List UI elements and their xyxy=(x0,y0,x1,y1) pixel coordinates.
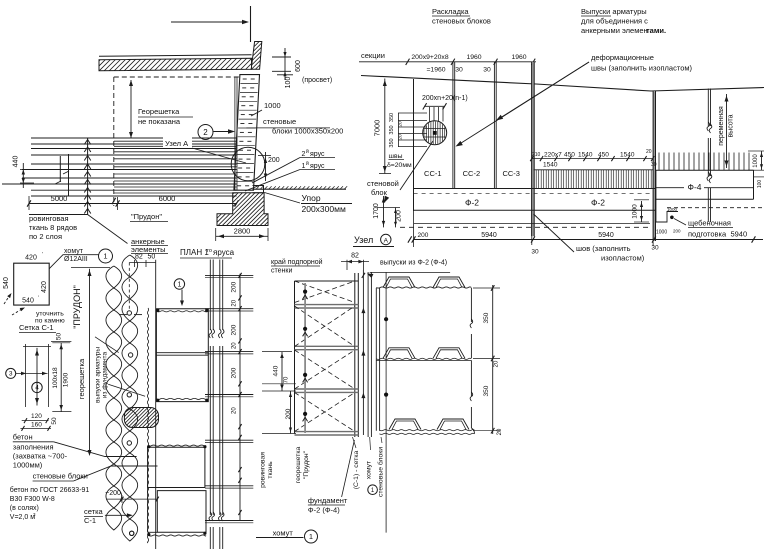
svg-text:стенки: стенки xyxy=(271,268,292,275)
svg-text:СС-2: СС-2 xyxy=(463,169,481,178)
svg-text:20: 20 xyxy=(232,299,238,306)
svg-text:секции: секции xyxy=(361,51,385,60)
svg-text:450: 450 xyxy=(564,152,575,159)
svg-text:блок: блок xyxy=(371,188,388,197)
svg-text:яруса: яруса xyxy=(213,248,235,257)
svg-text:й: й xyxy=(306,148,309,155)
svg-text:1: 1 xyxy=(371,488,375,494)
svg-text:20: 20 xyxy=(497,428,503,435)
svg-text:"Прудон": "Прудон" xyxy=(303,450,310,479)
svg-text:1900: 1900 xyxy=(63,372,70,387)
svg-text:уточнить: уточнить xyxy=(36,311,64,318)
svg-text:440: 440 xyxy=(13,156,20,168)
svg-text:швы (заполнить изопластом): швы (заполнить изопластом) xyxy=(591,64,693,73)
svg-text:деформационные: деформационные xyxy=(591,53,654,62)
svg-text:стеновых блоков: стеновых блоков xyxy=(432,17,491,26)
svg-text:=1960: =1960 xyxy=(426,67,445,74)
svg-text:2800: 2800 xyxy=(234,227,251,236)
svg-text:540: 540 xyxy=(3,277,10,289)
svg-text:Упор: Упор xyxy=(302,193,321,203)
svg-text:200: 200 xyxy=(231,281,238,292)
svg-text:20: 20 xyxy=(646,149,652,155)
svg-text:100х18: 100х18 xyxy=(52,367,59,389)
svg-text:Ø12АIII: Ø12АIII xyxy=(64,256,88,263)
svg-text:420: 420 xyxy=(25,255,37,262)
svg-text:1540: 1540 xyxy=(578,152,593,159)
svg-text:30: 30 xyxy=(483,67,491,74)
svg-text:1000: 1000 xyxy=(656,230,667,236)
svg-text:1540: 1540 xyxy=(620,152,635,159)
svg-text:Ф-4: Ф-4 xyxy=(687,182,701,192)
svg-text:георешетка: георешетка xyxy=(77,358,86,399)
svg-text:заполнения: заполнения xyxy=(13,443,54,452)
svg-text:шов (заполнить: шов (заполнить xyxy=(576,244,631,253)
svg-text:Узел А: Узел А xyxy=(165,139,188,148)
svg-text:1: 1 xyxy=(103,252,107,261)
svg-text:ткань: ткань xyxy=(267,461,274,479)
svg-text:30: 30 xyxy=(455,67,463,74)
svg-text:200: 200 xyxy=(268,157,280,164)
svg-text:ярус: ярус xyxy=(310,163,325,170)
svg-text:швы: швы xyxy=(389,153,403,160)
svg-text:1000: 1000 xyxy=(753,154,759,168)
svg-text:Узел: Узел xyxy=(354,235,373,245)
svg-text:(в солях): (в солях) xyxy=(10,505,39,512)
svg-text:5940: 5940 xyxy=(598,232,614,239)
svg-text:Раскладка: Раскладка xyxy=(432,7,469,16)
svg-text:82: 82 xyxy=(351,253,359,260)
svg-text:Сетка С-1: Сетка С-1 xyxy=(19,323,54,332)
svg-text:ткань 8 рядов: ткань 8 рядов xyxy=(29,223,77,232)
svg-text:1000: 1000 xyxy=(632,204,639,219)
svg-text:георешетка: георешетка xyxy=(295,447,302,484)
svg-text:ярус: ярус xyxy=(310,151,325,158)
svg-text:1960: 1960 xyxy=(511,54,526,61)
svg-text:анкерными элемен: анкерными элемен xyxy=(581,26,648,35)
svg-text:1700: 1700 xyxy=(373,203,380,219)
svg-text:СС-3: СС-3 xyxy=(502,169,520,178)
svg-text:"ПРУДОН": "ПРУДОН" xyxy=(72,285,82,329)
svg-text:высота: высота xyxy=(728,114,735,137)
svg-text:200: 200 xyxy=(231,324,238,335)
svg-text:1960: 1960 xyxy=(466,54,481,61)
svg-text:50: 50 xyxy=(51,417,58,425)
svg-text:бетон: бетон xyxy=(13,433,33,442)
svg-text:ровинговая: ровинговая xyxy=(260,452,267,488)
svg-text:20: 20 xyxy=(232,407,238,414)
svg-text:200х300мм: 200х300мм xyxy=(302,204,346,214)
svg-text:1: 1 xyxy=(177,282,181,289)
svg-text:(захватка ~700-: (захватка ~700- xyxy=(13,452,68,461)
svg-text:': ' xyxy=(38,296,39,302)
svg-text:хомут: хомут xyxy=(366,461,373,479)
svg-text:1540: 1540 xyxy=(543,162,558,169)
svg-text:160: 160 xyxy=(31,422,42,429)
svg-text:й: й xyxy=(306,160,309,167)
svg-text:сетка: сетка xyxy=(84,507,104,516)
svg-text:стеновые: стеновые xyxy=(263,117,296,126)
svg-text:1: 1 xyxy=(302,163,306,170)
svg-text:1000мм): 1000мм) xyxy=(13,461,43,470)
svg-text:1000: 1000 xyxy=(667,207,678,212)
svg-text:440: 440 xyxy=(273,365,280,376)
svg-text:350: 350 xyxy=(389,113,395,122)
svg-text:70: 70 xyxy=(284,376,290,383)
svg-text:тами.: тами. xyxy=(646,26,666,35)
svg-text:350: 350 xyxy=(389,125,395,134)
svg-text:край подпорной: край подпорной xyxy=(271,258,323,266)
svg-text:стеновые блоки: стеновые блоки xyxy=(33,472,88,481)
svg-text:200: 200 xyxy=(418,232,429,239)
svg-text:Ф-2 (Ф-4): Ф-2 (Ф-4) xyxy=(308,506,340,515)
svg-text:210: 210 xyxy=(532,152,541,158)
svg-text:щебеночная: щебеночная xyxy=(688,219,731,228)
svg-text:С-1: С-1 xyxy=(84,516,96,525)
svg-text:200: 200 xyxy=(396,210,403,222)
svg-text:2: 2 xyxy=(203,128,208,137)
svg-text:30: 30 xyxy=(651,162,657,168)
svg-text:30: 30 xyxy=(651,245,659,252)
svg-text:2: 2 xyxy=(302,151,306,158)
svg-text:30: 30 xyxy=(531,249,539,256)
svg-text:по 2 слоя: по 2 слоя xyxy=(29,232,62,241)
svg-text:3: 3 xyxy=(9,371,13,378)
svg-text:82: 82 xyxy=(135,254,143,261)
svg-text:переменная: переменная xyxy=(718,106,725,146)
svg-text:Ф-2: Ф-2 xyxy=(591,198,605,208)
svg-text:4: 4 xyxy=(35,385,39,392)
svg-text:120: 120 xyxy=(31,413,42,420)
svg-text:выпуски из Ф-2 (Ф-4): выпуски из Ф-2 (Ф-4) xyxy=(380,260,447,267)
svg-text:изопластом): изопластом) xyxy=(601,254,645,263)
svg-text:1000: 1000 xyxy=(264,101,281,110)
svg-text:20: 20 xyxy=(232,342,238,349)
svg-text:200хn+20(n-1): 200хn+20(n-1) xyxy=(422,95,468,102)
svg-text:350: 350 xyxy=(483,312,490,323)
svg-text:350: 350 xyxy=(483,385,490,396)
svg-text:Выпуски арматуры: Выпуски арматуры xyxy=(581,7,647,16)
svg-text:50: 50 xyxy=(56,333,63,341)
svg-text:хомут: хомут xyxy=(64,248,84,255)
svg-text:стеновой: стеновой xyxy=(367,179,399,188)
svg-text:фундамент: фундамент xyxy=(308,496,348,505)
svg-text:В30 F300 W-8: В30 F300 W-8 xyxy=(10,496,55,503)
svg-text:200: 200 xyxy=(673,229,681,234)
svg-text:200х9+20х8: 200х9+20х8 xyxy=(411,54,448,61)
svg-text:хомут: хомут xyxy=(273,529,294,538)
svg-text:подготовка: подготовка xyxy=(688,230,727,239)
svg-text:540: 540 xyxy=(22,298,34,305)
svg-text:6000: 6000 xyxy=(159,194,176,203)
svg-text:100: 100 xyxy=(757,180,763,189)
svg-text:450: 450 xyxy=(598,152,609,159)
svg-text:100: 100 xyxy=(285,77,292,89)
svg-text:из фундамента: из фундамента xyxy=(102,352,109,399)
svg-text:ровинговая: ровинговая xyxy=(29,214,69,223)
svg-text:1: 1 xyxy=(309,532,313,541)
svg-text:"Прудон": "Прудон" xyxy=(131,212,162,221)
svg-text:го: го xyxy=(207,248,212,254)
svg-text:': ' xyxy=(42,252,43,258)
svg-text:50: 50 xyxy=(148,254,156,261)
svg-text:3: 3 xyxy=(33,512,36,517)
svg-text:δ=20мм: δ=20мм xyxy=(387,162,412,169)
svg-text:200: 200 xyxy=(231,367,238,378)
svg-text:стеновые блоки: стеновые блоки xyxy=(377,447,385,497)
svg-text:Георешетка: Георешетка xyxy=(138,107,180,116)
svg-text:для объединения с: для объединения с xyxy=(581,17,648,26)
svg-text:(С-1) - сетка: (С-1) - сетка xyxy=(353,451,360,490)
svg-text:ПЛАН 1: ПЛАН 1 xyxy=(180,248,209,257)
svg-text:не показана: не показана xyxy=(138,117,181,126)
svg-text:20: 20 xyxy=(494,360,500,367)
svg-text:Ф-2: Ф-2 xyxy=(465,198,479,208)
svg-text:5940: 5940 xyxy=(730,229,747,238)
svg-text:7000: 7000 xyxy=(373,120,382,137)
svg-text:220х7: 220х7 xyxy=(544,152,562,159)
svg-text:350: 350 xyxy=(389,138,395,147)
svg-text:20: 20 xyxy=(398,134,404,140)
svg-text:выпуски арматуры: выпуски арматуры xyxy=(95,347,102,403)
svg-text:5940: 5940 xyxy=(481,232,497,239)
svg-text:5000: 5000 xyxy=(51,194,68,203)
svg-text:200: 200 xyxy=(285,408,292,419)
svg-text:20: 20 xyxy=(398,121,404,127)
svg-text:V=2,0 м: V=2,0 м xyxy=(10,514,35,521)
svg-text:600: 600 xyxy=(295,60,302,72)
svg-text:420: 420 xyxy=(41,281,48,293)
svg-text:СС-1: СС-1 xyxy=(424,169,442,178)
svg-text:бетон по ГОСТ 26633-91: бетон по ГОСТ 26633-91 xyxy=(10,486,90,494)
svg-text:А: А xyxy=(384,237,389,244)
svg-text:(просвет): (просвет) xyxy=(302,77,332,84)
